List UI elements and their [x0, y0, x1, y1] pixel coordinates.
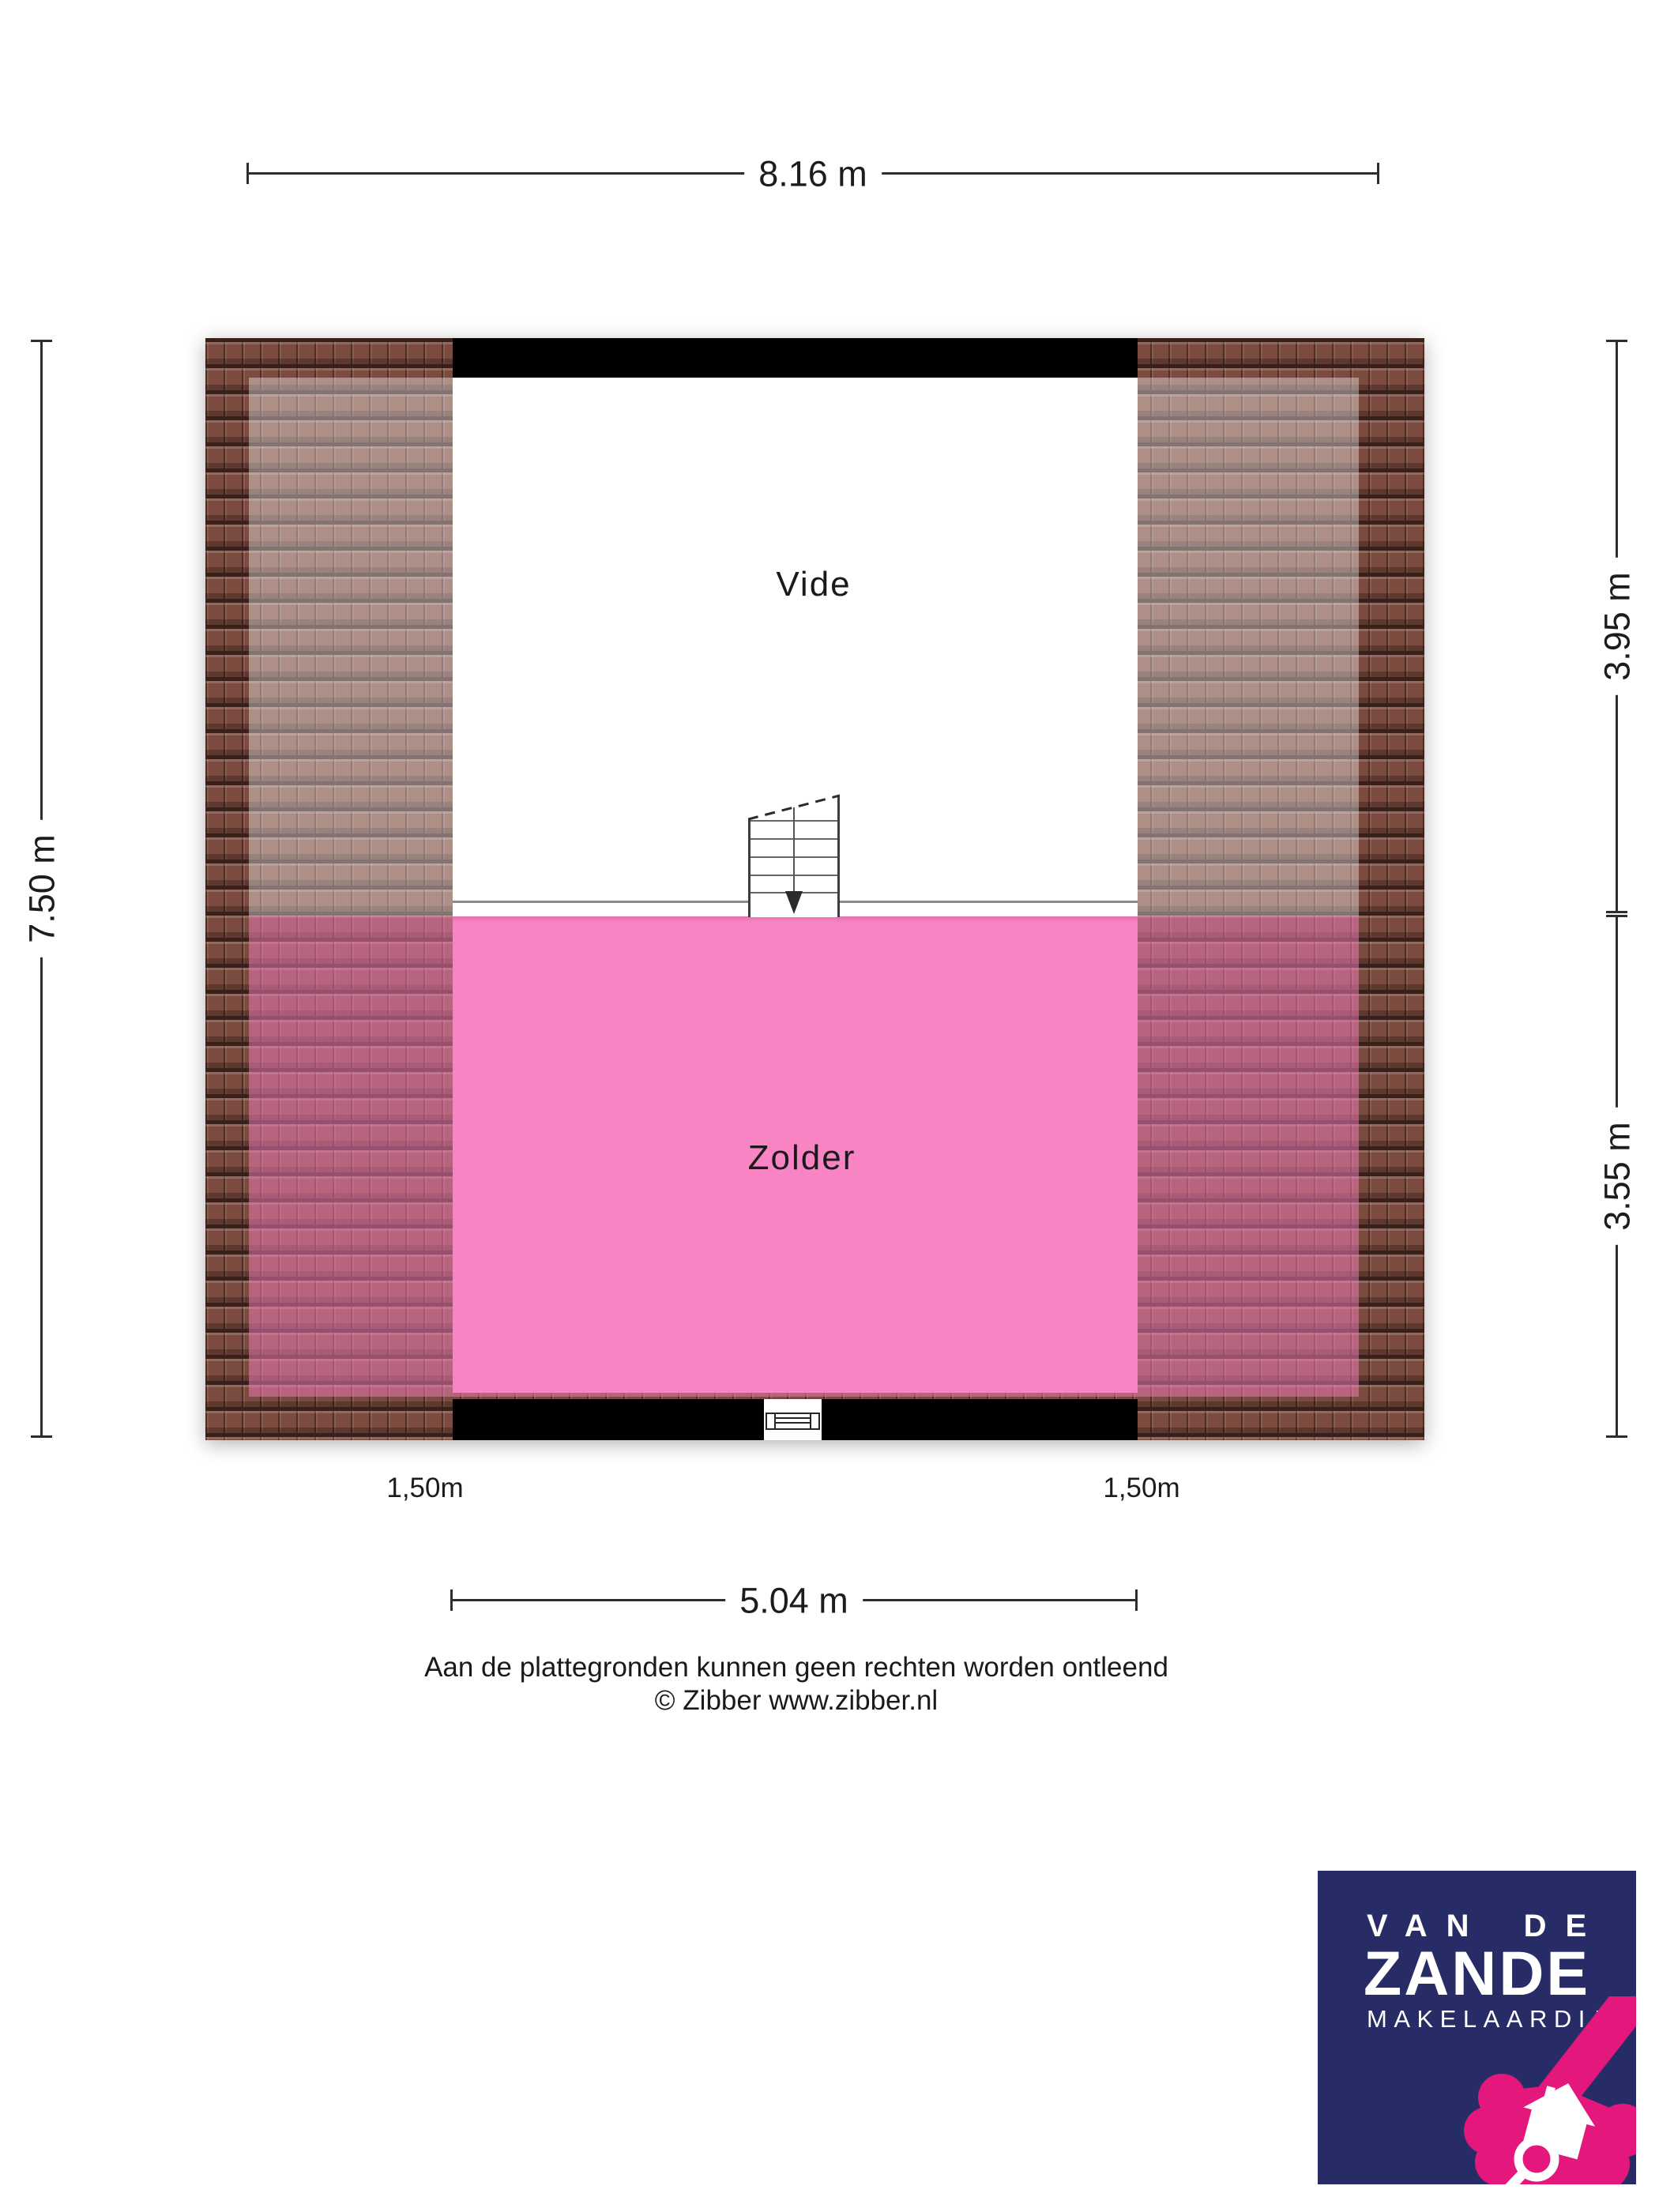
room-label-vide: Vide [776, 565, 851, 604]
dimension-line-right-lower: 3.55 m [1616, 915, 1618, 1438]
dimension-line-left: 7.50 m [40, 340, 43, 1438]
dimension-label-left: 7.50 m [21, 820, 63, 957]
dimension-label-bottom: 5.04 m [725, 1579, 863, 1622]
room-label-zolder: Zolder [748, 1138, 856, 1178]
wall-bottom [453, 1399, 1138, 1440]
wall-top [453, 338, 1138, 378]
window-frame-end [810, 1413, 820, 1430]
window-glazing-line [774, 1422, 811, 1424]
disclaimer-line: Aan de plattegronden kunnen geen rechten… [0, 1651, 1593, 1684]
floorplan-page: 8.16 m 7.50 m 3.95 m 3.55 m [0, 0, 1659, 2212]
dimension-line-right-upper: 3.95 m [1616, 340, 1618, 913]
headroom-label-left: 1,50m [386, 1473, 463, 1504]
window-frame-end [766, 1413, 776, 1430]
headroom-label-right: 1,50m [1103, 1473, 1179, 1504]
dimension-line-bottom: 5.04 m [450, 1599, 1138, 1601]
dimension-label-right-upper: 3.95 m [1596, 558, 1638, 695]
dimension-label-top: 8.16 m [744, 152, 882, 195]
roof-window-symbol [766, 1413, 820, 1430]
disclaimer: Aan de plattegronden kunnen geen rechten… [0, 1651, 1593, 1717]
staircase [748, 792, 840, 919]
floorplan-attic: Vide Zolder [205, 338, 1424, 1440]
logo-emblem [1461, 1996, 1636, 2184]
dimension-label-right-lower: 3.55 m [1596, 1108, 1638, 1245]
dimension-line-top: 8.16 m [246, 172, 1379, 175]
window-glazing-line [774, 1417, 811, 1419]
wall-opening [764, 1399, 822, 1440]
broker-logo: VAN DE ZANDE MAKELAARDIJ [1318, 1871, 1636, 2184]
copyright-line: © Zibber www.zibber.nl [0, 1684, 1593, 1717]
